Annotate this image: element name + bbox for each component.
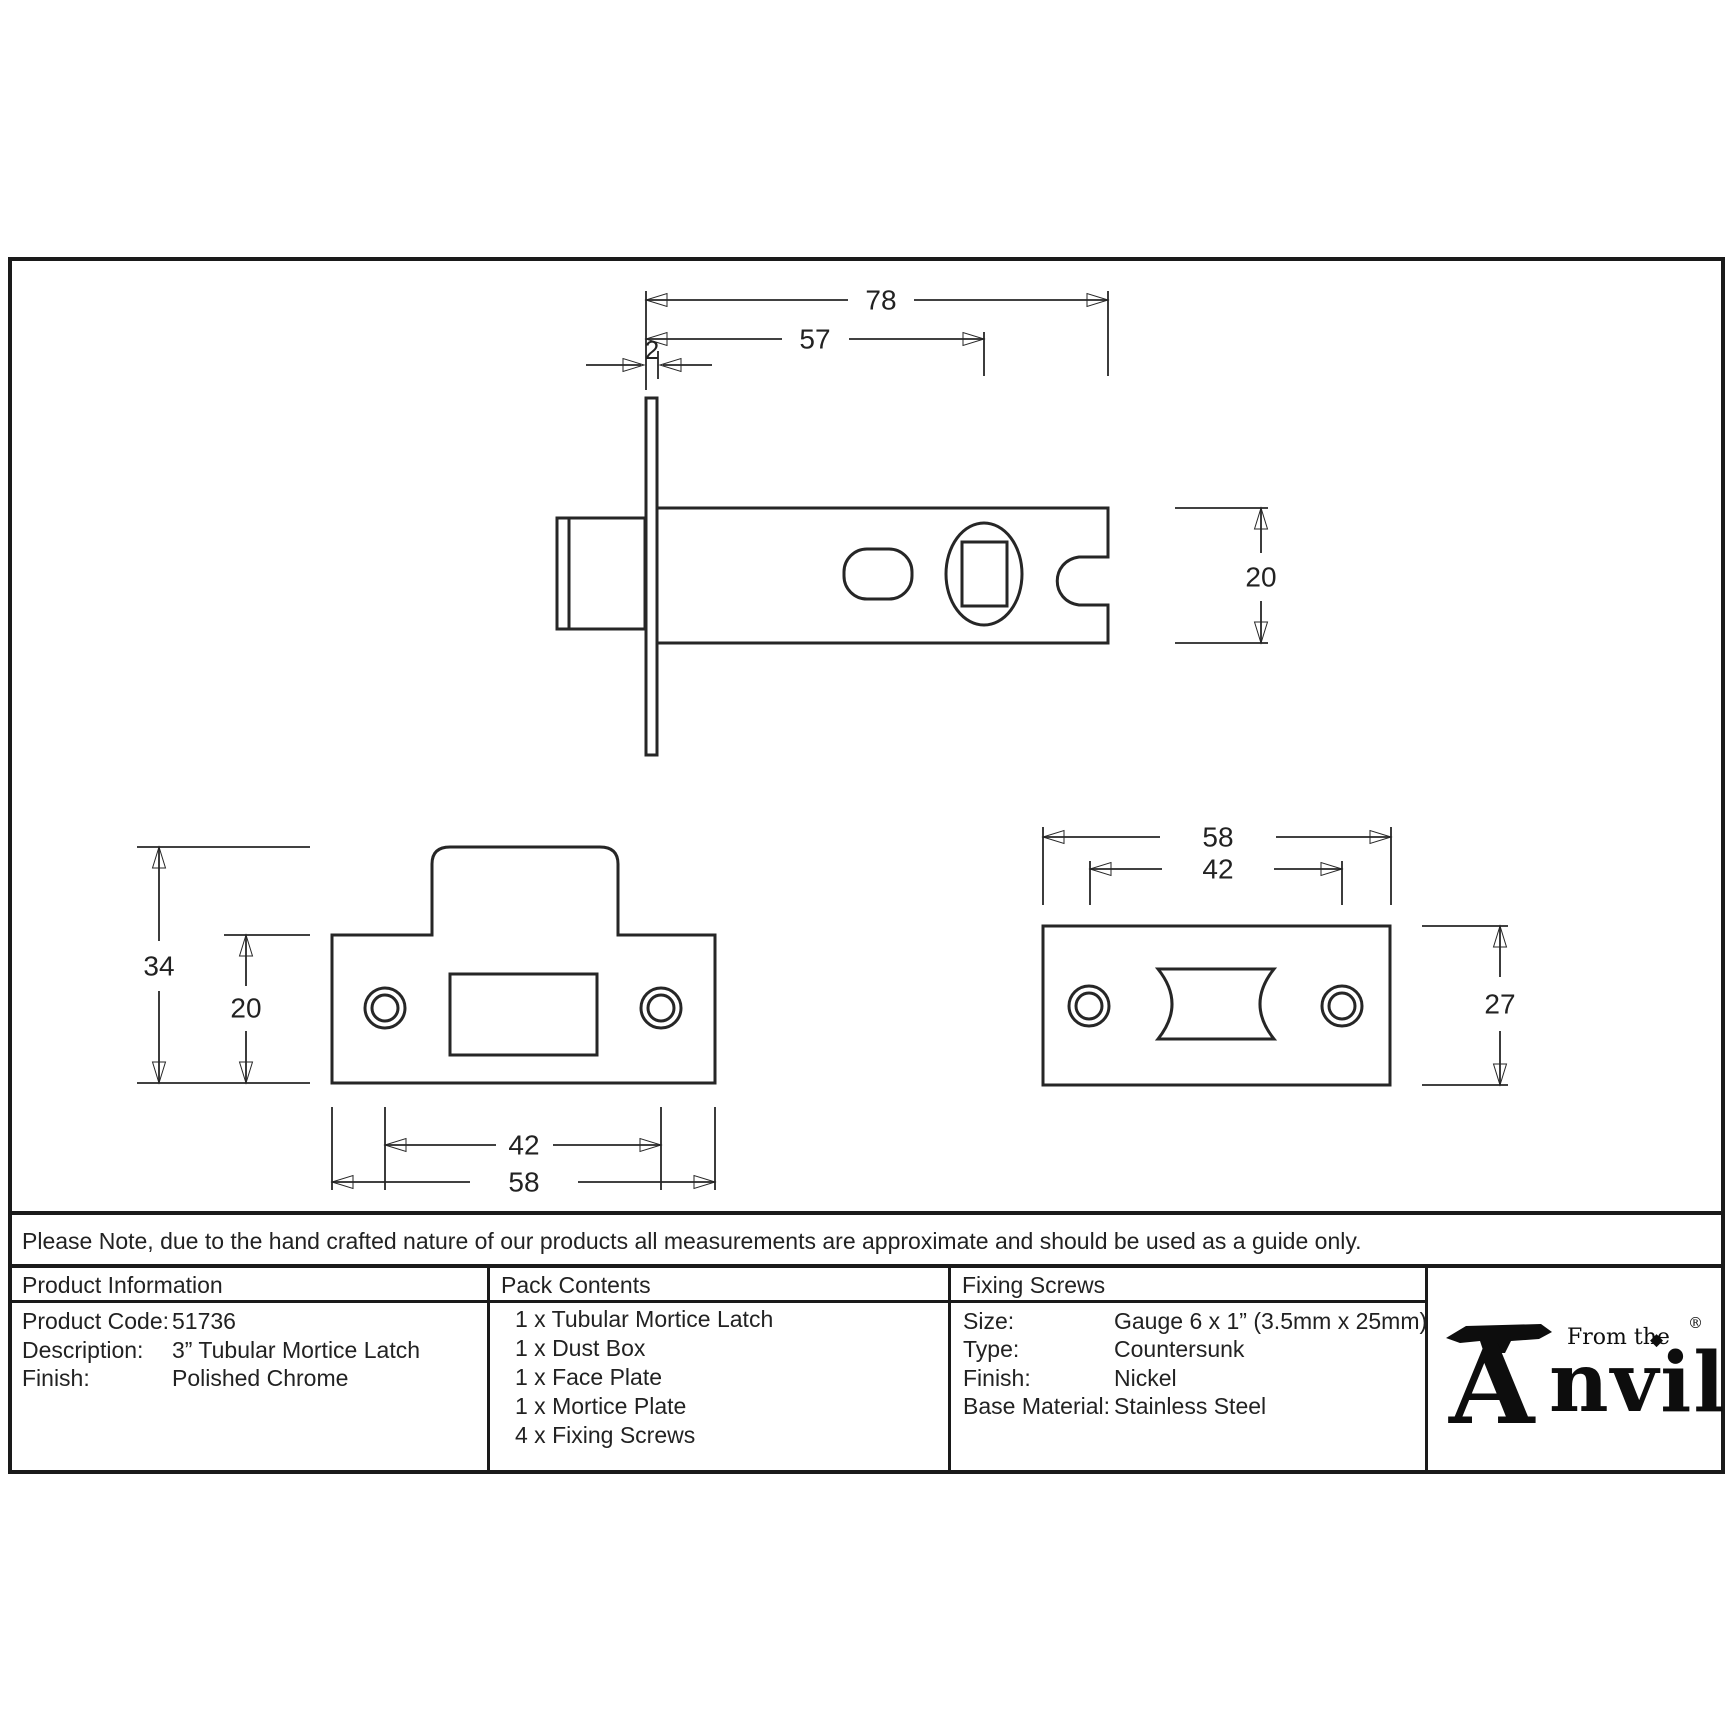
- svg-text:57: 57: [799, 324, 830, 355]
- table-row: Finish: Polished Chrome: [22, 1364, 420, 1393]
- svg-text:58: 58: [508, 1167, 539, 1198]
- field-label: Size:: [963, 1307, 1114, 1335]
- field-label: Product Code:: [22, 1307, 172, 1336]
- list-item: 4 x Fixing Screws: [515, 1421, 773, 1450]
- table-row: Description: 3” Tubular Mortice Latch: [22, 1336, 420, 1365]
- spindle-hole: [946, 523, 1022, 625]
- dim-backset: 57: [646, 324, 984, 377]
- note-bar-top-rule: [8, 1211, 1725, 1215]
- product-information-column: Product Code: 51736 Description: 3” Tubu…: [22, 1307, 420, 1393]
- anvil-logo: A nvil From the ◆ ®: [1425, 1264, 1726, 1474]
- list-item: 1 x Tubular Mortice Latch: [515, 1305, 773, 1334]
- dim-faceplate-thickness: 2: [586, 335, 712, 379]
- svg-text:2: 2: [645, 335, 659, 365]
- faceplate-outline: [646, 398, 657, 755]
- spindle-square: [962, 542, 1007, 606]
- face-plate-outline: [332, 847, 715, 1083]
- svg-text:42: 42: [508, 1130, 539, 1161]
- field-value: Stainless Steel: [1114, 1392, 1266, 1420]
- field-value: Polished Chrome: [172, 1364, 348, 1393]
- dim-hole-spacing: 42: [1090, 854, 1342, 906]
- field-value: 3” Tubular Mortice Latch: [172, 1336, 420, 1365]
- list-item: 1 x Face Plate: [515, 1363, 773, 1392]
- table-row: Type: Countersunk: [963, 1335, 1427, 1363]
- field-label: Base Material:: [963, 1392, 1114, 1420]
- svg-text:20: 20: [1245, 562, 1276, 593]
- mortice-plate-outline: [1043, 926, 1390, 1085]
- pack-contents-header: Pack Contents: [501, 1272, 651, 1299]
- field-label: Finish:: [22, 1364, 172, 1393]
- field-value: Gauge 6 x 1” (3.5mm x 25mm): [1114, 1307, 1427, 1335]
- field-value: 51736: [172, 1307, 236, 1336]
- svg-text:58: 58: [1202, 822, 1233, 853]
- pack-contents-column: 1 x Tubular Mortice Latch 1 x Dust Box 1…: [515, 1305, 773, 1450]
- table-row: Finish: Nickel: [963, 1364, 1427, 1392]
- screw-hole: [372, 995, 398, 1021]
- latch-body-outline: [657, 508, 1108, 643]
- screw-hole: [648, 995, 674, 1021]
- svg-text:42: 42: [1202, 854, 1233, 885]
- dim-overall-length: 78: [646, 285, 1108, 391]
- table-divider: [487, 1264, 490, 1474]
- svg-text:78: 78: [865, 285, 896, 316]
- screw-hole: [1329, 993, 1355, 1019]
- field-label: Description:: [22, 1336, 172, 1365]
- svg-text:20: 20: [230, 993, 261, 1024]
- dim-plate-height: 20: [224, 935, 310, 1083]
- spec-sheet: 78 57 2: [0, 0, 1735, 1735]
- face-plate-view: 34 20 42: [137, 847, 715, 1198]
- svg-text:27: 27: [1484, 989, 1515, 1020]
- table-row: Size: Gauge 6 x 1” (3.5mm x 25mm): [963, 1307, 1427, 1335]
- logo-wordmark: nvil: [1549, 1342, 1727, 1424]
- table-header-rule: [8, 1300, 1425, 1303]
- technical-drawing: 78 57 2: [0, 0, 1735, 1735]
- product-information-header: Product Information: [22, 1272, 223, 1299]
- table-divider: [948, 1264, 951, 1474]
- fixing-screws-header: Fixing Screws: [962, 1272, 1105, 1299]
- field-value: Nickel: [1114, 1364, 1177, 1392]
- field-value: Countersunk: [1114, 1335, 1244, 1363]
- table-row: Product Code: 51736: [22, 1307, 420, 1336]
- table-row: Base Material: Stainless Steel: [963, 1392, 1427, 1420]
- strike-opening: [1158, 969, 1274, 1039]
- latch-side-view: 78 57 2: [557, 285, 1277, 756]
- field-label: Finish:: [963, 1364, 1114, 1392]
- logo-initial: A: [1449, 1330, 1534, 1440]
- fixing-screws-column: Size: Gauge 6 x 1” (3.5mm x 25mm) Type: …: [963, 1307, 1427, 1420]
- dim-body-height: 20: [1175, 508, 1277, 643]
- dim-plate-height: 27: [1422, 926, 1516, 1085]
- mortice-plate-view: 58 42 27: [1043, 822, 1516, 1086]
- list-item: 1 x Mortice Plate: [515, 1392, 773, 1421]
- oval-hole: [844, 549, 912, 599]
- field-label: Type:: [963, 1335, 1114, 1363]
- svg-text:34: 34: [143, 951, 174, 982]
- list-item: 1 x Dust Box: [515, 1334, 773, 1363]
- latch-opening: [450, 974, 597, 1055]
- measurement-note: Please Note, due to the hand crafted nat…: [22, 1228, 1362, 1254]
- screw-hole: [1076, 993, 1102, 1019]
- diamond-icon: ◆: [1650, 1331, 1663, 1348]
- dim-overall-height: 34: [137, 847, 310, 1083]
- registered-mark-icon: ®: [1688, 1316, 1703, 1331]
